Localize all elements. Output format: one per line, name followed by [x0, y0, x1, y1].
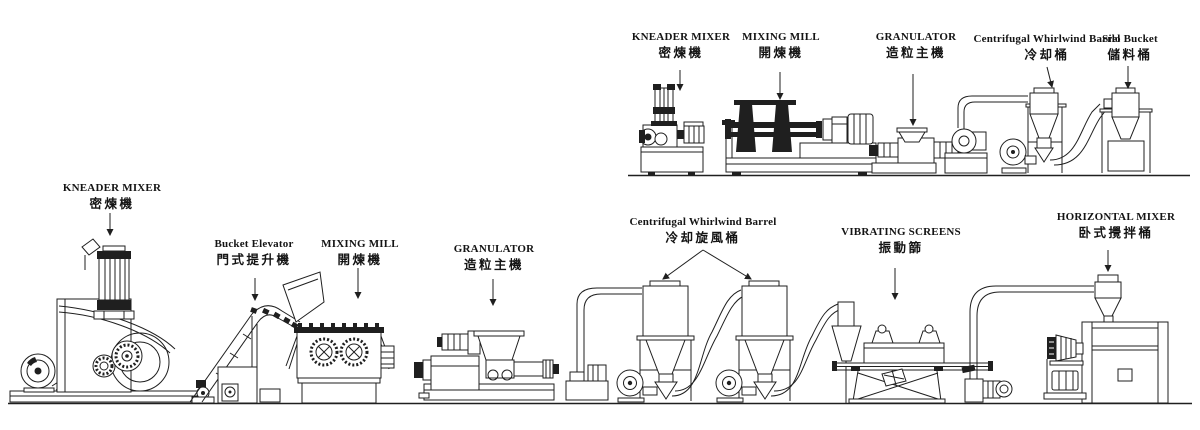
label-bottom-mixing-mill: MIXING MILL 開煉機: [321, 238, 399, 267]
centrifugal-barrel-B-drawing: [716, 281, 793, 402]
mixing-mill-bottom-drawing: [286, 323, 394, 403]
label-bucket-elevator: Bucket Elevator 門式提升機: [214, 238, 293, 267]
label-top-kneader-mixer-zh: 密煉機: [632, 45, 730, 61]
label-bottom-kneader-mixer-zh: 密煉機: [63, 196, 161, 212]
label-vibrating-screens: VIBRATING SCREENS 振動篩: [841, 226, 961, 255]
label-horizontal-mixer: HORIZONTAL MIXER 卧式攪拌桶: [1057, 211, 1175, 240]
label-bucket-elevator-en: Bucket Elevator: [214, 238, 293, 252]
label-bottom-mixing-mill-en: MIXING MILL: [321, 238, 399, 252]
label-bottom-kneader-mixer-en: KNEADER MIXER: [63, 182, 161, 196]
label-bottom-granulator-en: GRANULATOR: [454, 243, 534, 257]
mixing-mill-top-drawing: [722, 100, 876, 175]
label-bottom-granulator-zh: 造粒主機: [454, 257, 534, 273]
label-horizontal-mixer-en: HORIZONTAL MIXER: [1057, 211, 1175, 225]
label-bottom-centrifugal-barrel: Centrifugal Whirlwind Barrel 冷却旋風桶: [630, 216, 777, 245]
kneader-mixer-top-drawing: [639, 84, 704, 176]
label-top-mixing-mill-en: MIXING MILL: [742, 31, 820, 45]
centrifugal-whirlwind-barrel-top-drawing: [1000, 88, 1106, 173]
diagram-canvas: KNEADER MIXER 密煉機 MIXING MILL 開煉機 GRANUL…: [0, 0, 1200, 430]
label-top-silo-bucket-zh: 儲料桶: [1102, 47, 1158, 63]
label-top-kneader-mixer: KNEADER MIXER 密煉機: [632, 31, 730, 60]
kneader-mixer-bottom-drawing: [10, 239, 214, 403]
label-top-silo-bucket: Silo Bucket 儲料桶: [1102, 33, 1158, 62]
label-top-centrifugal-barrel-zh: 冷却桶: [974, 47, 1121, 63]
label-bottom-centrifugal-barrel-zh: 冷却旋風桶: [630, 230, 777, 246]
silo-bucket-top-drawing: [1100, 88, 1152, 173]
centrifugal-barrel-A-drawing: [617, 281, 694, 402]
label-bottom-kneader-mixer: KNEADER MIXER 密煉機: [63, 182, 161, 211]
label-top-granulator-zh: 造粒主機: [876, 45, 956, 61]
label-top-kneader-mixer-en: KNEADER MIXER: [632, 31, 730, 45]
label-top-granulator-en: GRANULATOR: [876, 31, 956, 45]
label-bottom-mixing-mill-zh: 開煉機: [321, 252, 399, 268]
label-top-silo-bucket-en: Silo Bucket: [1102, 33, 1158, 47]
label-top-centrifugal-barrel-en: Centrifugal Whirlwind Barrel: [974, 33, 1121, 47]
label-bucket-elevator-zh: 門式提升機: [214, 252, 293, 268]
label-top-mixing-mill: MIXING MILL 開煉機: [742, 31, 820, 60]
machinery-drawing: [0, 0, 1200, 430]
label-top-centrifugal-barrel: Centrifugal Whirlwind Barrel 冷却桶: [974, 33, 1121, 62]
granulator-bottom-drawing: [414, 331, 559, 400]
label-bottom-centrifugal-barrel-en: Centrifugal Whirlwind Barrel: [630, 216, 777, 230]
horizontal-mixer-drawing: [1044, 275, 1168, 403]
label-horizontal-mixer-zh: 卧式攪拌桶: [1057, 225, 1175, 241]
label-top-granulator: GRANULATOR 造粒主機: [876, 31, 956, 60]
label-bottom-granulator: GRANULATOR 造粒主機: [454, 243, 534, 272]
label-vibrating-screens-zh: 振動篩: [841, 240, 961, 256]
label-vibrating-screens-en: VIBRATING SCREENS: [841, 226, 961, 240]
label-top-mixing-mill-zh: 開煉機: [742, 45, 820, 61]
